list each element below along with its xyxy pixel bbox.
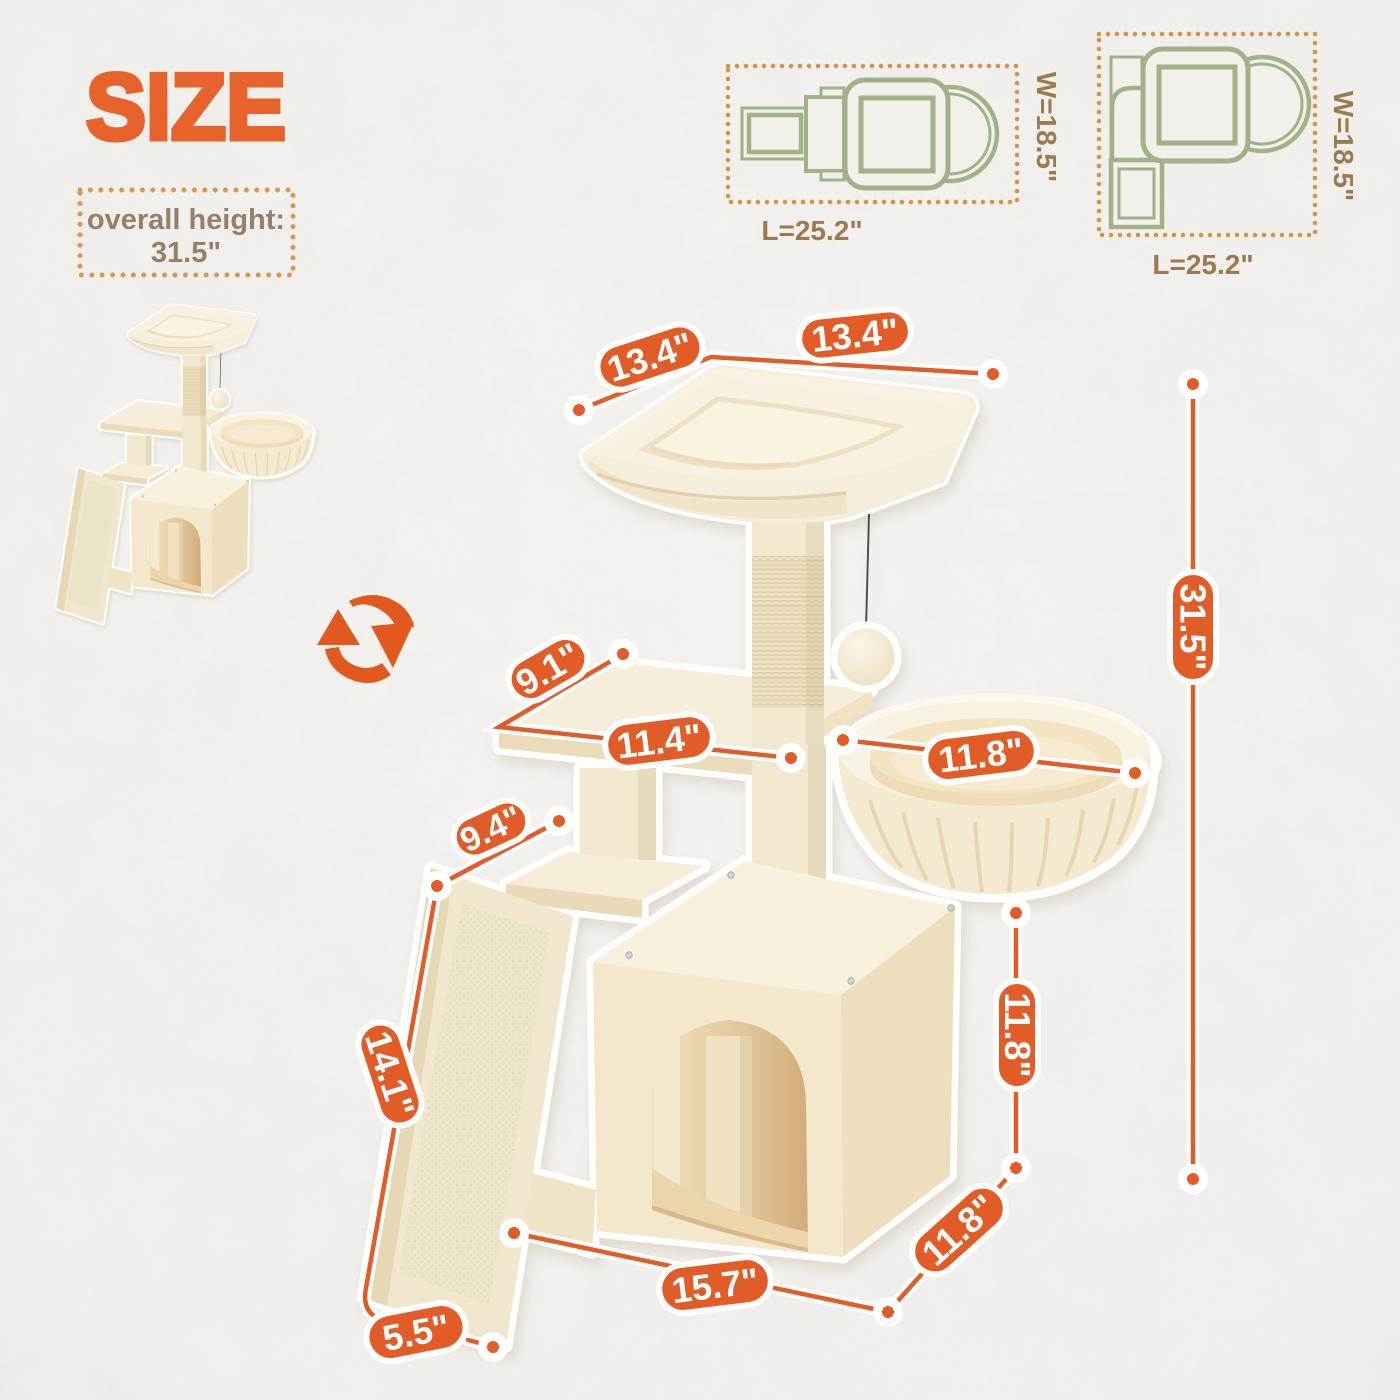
svg-text:31.5": 31.5" bbox=[1173, 583, 1214, 670]
svg-text:11.8": 11.8" bbox=[997, 992, 1038, 1077]
svg-text:SIZE: SIZE bbox=[86, 54, 286, 159]
svg-text:L=25.2": L=25.2" bbox=[1152, 249, 1253, 280]
svg-text:L=25.2": L=25.2" bbox=[761, 215, 862, 246]
svg-text:W=18.5": W=18.5" bbox=[1328, 91, 1359, 202]
svg-text:W=18.5": W=18.5" bbox=[1031, 72, 1062, 183]
svg-text:31.5": 31.5" bbox=[151, 237, 221, 269]
svg-text:overall height:: overall height: bbox=[87, 204, 285, 236]
